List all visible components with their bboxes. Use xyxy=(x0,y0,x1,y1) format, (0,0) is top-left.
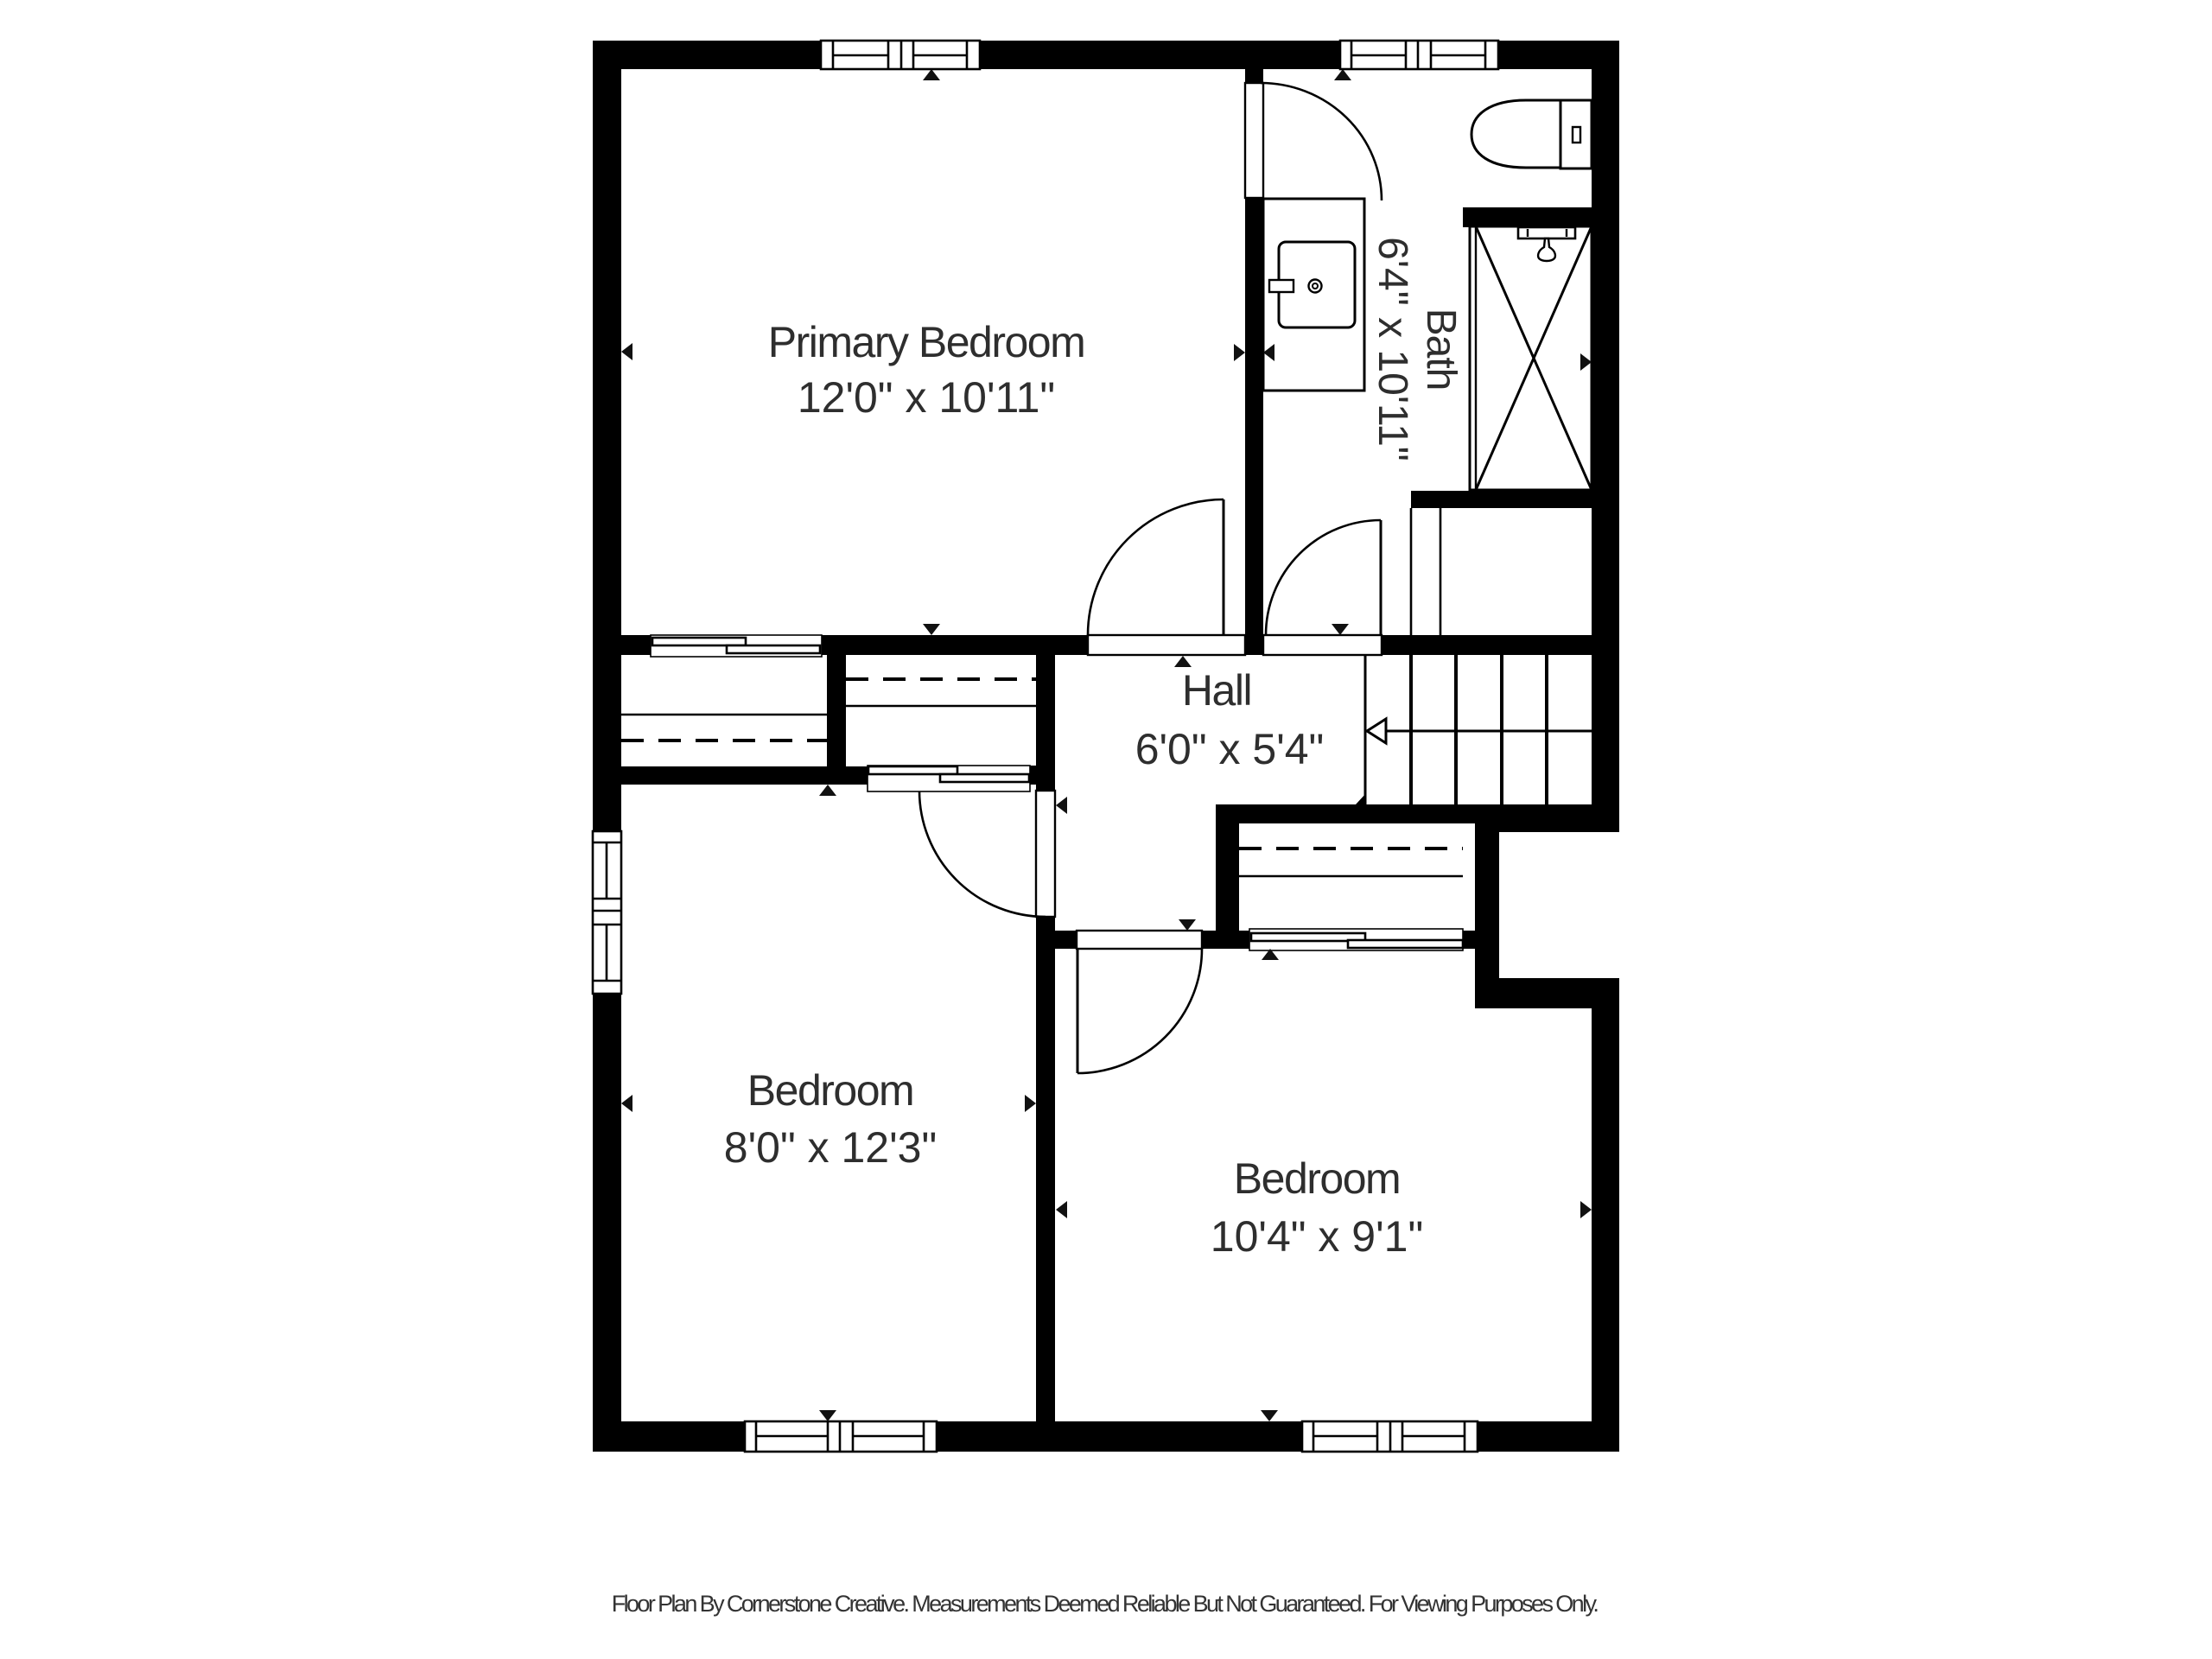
svg-text:12'0" x 10'11": 12'0" x 10'11" xyxy=(798,373,1055,422)
svg-text:10'4" x 9'1": 10'4" x 9'1" xyxy=(1211,1212,1423,1261)
svg-text:6'4" x 10'11": 6'4" x 10'11" xyxy=(1370,237,1415,461)
svg-text:Bedroom: Bedroom xyxy=(1234,1154,1400,1203)
svg-text:Bedroom: Bedroom xyxy=(747,1066,913,1115)
svg-text:Bath: Bath xyxy=(1418,308,1464,391)
svg-text:Primary Bedroom: Primary Bedroom xyxy=(768,318,1085,366)
svg-text:6'0" x 5'4": 6'0" x 5'4" xyxy=(1135,725,1325,773)
svg-text:Hall: Hall xyxy=(1182,666,1251,715)
svg-text:Floor Plan By Cornerstone Crea: Floor Plan By Cornerstone Creative. Meas… xyxy=(612,1591,1599,1617)
svg-text:8'0" x 12'3": 8'0" x 12'3" xyxy=(724,1123,937,1172)
